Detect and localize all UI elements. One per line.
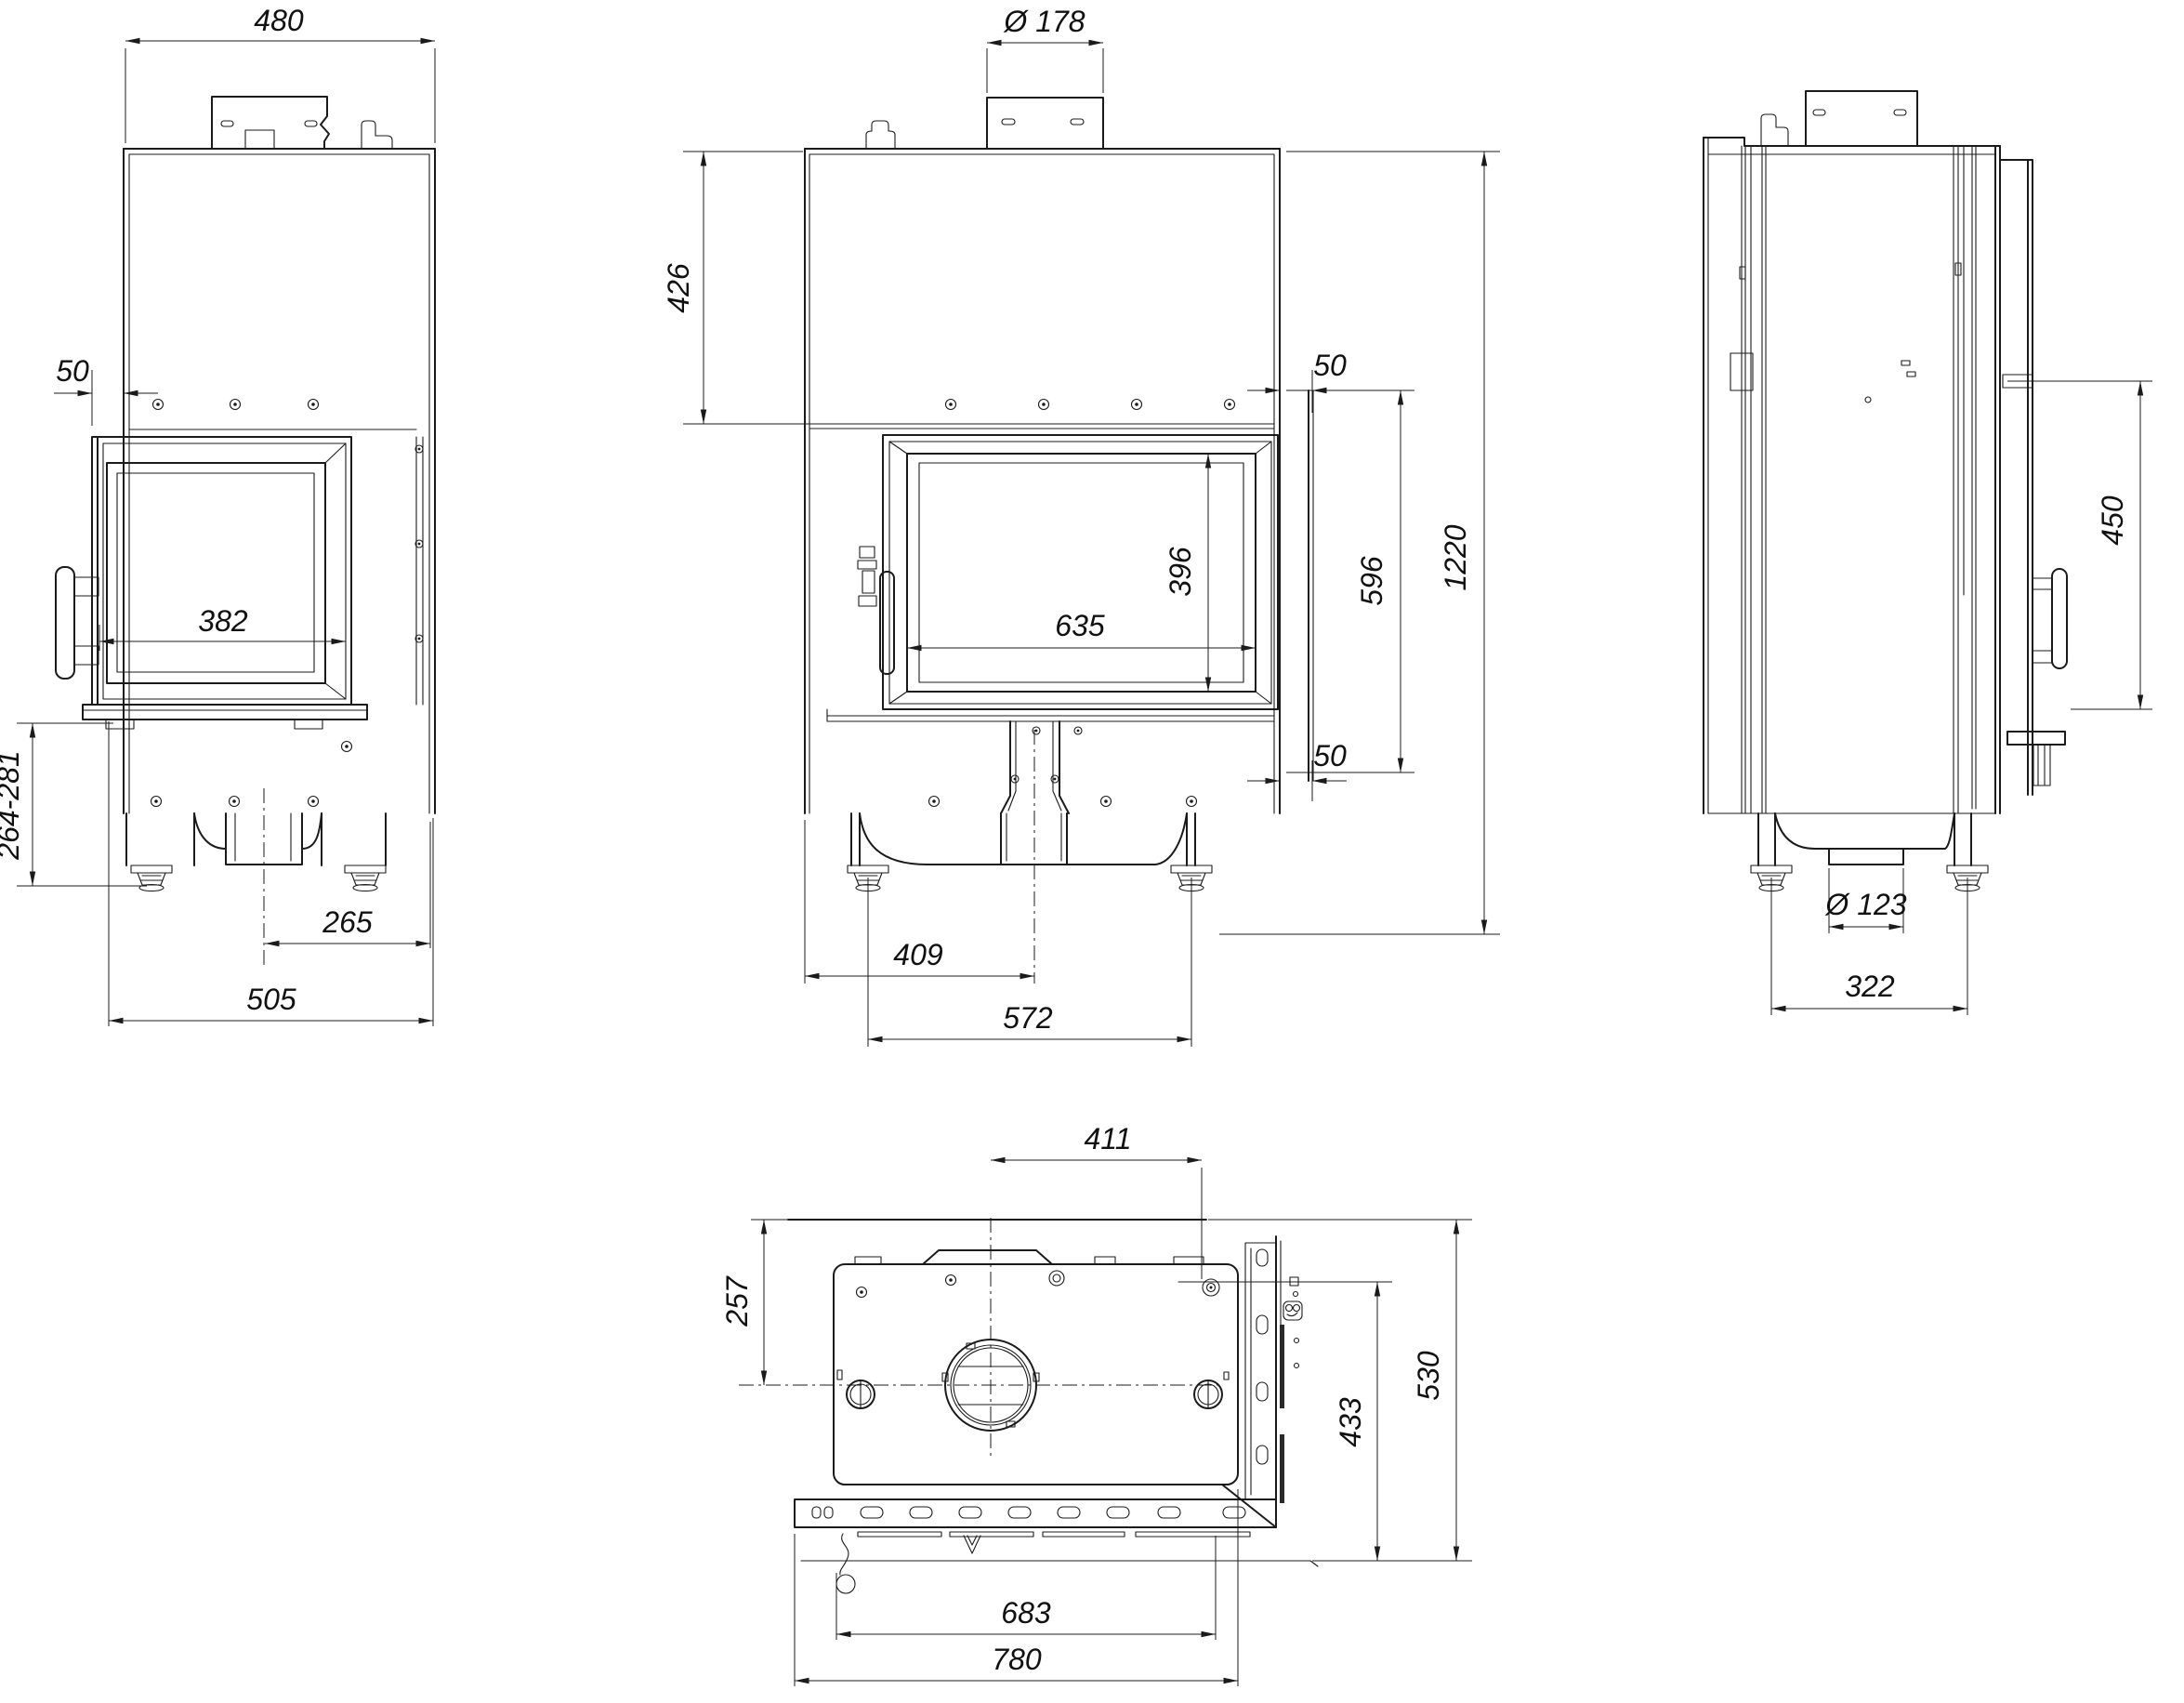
dim-50-top: 50 <box>1247 349 1347 413</box>
cold-handle-tool[interactable] <box>836 1534 855 1593</box>
dim-409: 409 <box>805 820 1034 984</box>
latch <box>964 1536 980 1553</box>
flue-collar <box>987 98 1103 149</box>
flue-collar <box>1806 91 1917 146</box>
dim-label: 411 <box>1084 1122 1131 1155</box>
side-door-edge <box>2000 160 2065 795</box>
side-glass-door <box>83 437 423 729</box>
dim-257: 257 <box>720 1220 788 1385</box>
dim-396: 396 <box>1164 454 1208 692</box>
dim-411: 411 <box>991 1122 1202 1279</box>
dim-382: 382 <box>99 604 346 651</box>
dim-label: 780 <box>992 1643 1042 1676</box>
dim-label: 572 <box>1003 1001 1053 1035</box>
dim-label: Ø 123 <box>1824 888 1906 921</box>
dim-label: 596 <box>1355 556 1388 606</box>
dim-label: 257 <box>720 1275 754 1327</box>
dim-683: 683 <box>836 1536 1216 1640</box>
dim-265: 265 <box>265 822 430 948</box>
adjustable-foot[interactable] <box>131 865 172 891</box>
technical-drawing-sheet: 480 50 382 264-281 265 505 <box>0 0 2184 1703</box>
hinge-clip-icon <box>1283 1301 1302 1320</box>
air-control-knob <box>362 121 392 149</box>
dim-label: 426 <box>662 263 695 313</box>
screw-large <box>1049 1271 1064 1286</box>
dim-label: 50 <box>56 354 89 388</box>
dim-label: 396 <box>1164 547 1197 597</box>
dim-label: Ø 178 <box>1003 5 1085 38</box>
view-top: 411 257 433 530 683 780 <box>720 1122 1472 1686</box>
view-side-b: 450 Ø 123 322 <box>1704 91 2152 1015</box>
dim-50-offset: 50 <box>54 354 158 426</box>
dim-label: 265 <box>322 905 373 939</box>
dim-50-bottom: 50 <box>1247 739 1347 801</box>
dim-450: 450 <box>2007 381 2152 709</box>
dim-label: 1220 <box>1439 524 1472 590</box>
dim-label: 50 <box>1313 739 1347 772</box>
dim-label: 409 <box>893 938 943 971</box>
adjustable-foot[interactable] <box>345 865 386 891</box>
dim-505: 505 <box>109 721 433 1026</box>
fireplace-insert-drawing: 480 50 382 264-281 265 505 <box>0 0 2184 1703</box>
dim-flue-123: Ø 123 <box>1824 868 1906 933</box>
air-control-knob <box>1761 114 1788 146</box>
dim-label: 683 <box>1001 1596 1051 1630</box>
dim-label: 530 <box>1412 1351 1445 1401</box>
dim-label: 433 <box>1334 1397 1367 1447</box>
dim-label: 322 <box>1845 970 1895 1003</box>
dim-426: 426 <box>662 152 811 424</box>
dim-480: 480 <box>125 4 435 143</box>
dim-label: 635 <box>1055 609 1105 642</box>
view-front: Ø 178 426 50 596 1220 50 <box>662 5 1500 1047</box>
view-side-a: 480 50 382 264-281 265 505 <box>0 4 435 1026</box>
dim-label: 450 <box>2096 495 2129 546</box>
door-handle[interactable] <box>2033 569 2067 668</box>
dim-label: 480 <box>254 4 304 37</box>
dim-label: 264-281 <box>0 750 25 860</box>
dim-530: 530 <box>1208 1220 1472 1561</box>
door-latch[interactable] <box>858 547 894 674</box>
dim-1220: 1220 <box>1219 152 1500 934</box>
dim-596: 596 <box>1286 390 1414 772</box>
dim-635: 635 <box>907 609 1256 648</box>
dim-label: 382 <box>198 604 248 638</box>
dim-flue-178: Ø 178 <box>987 5 1103 93</box>
dim-label: 505 <box>246 983 296 1016</box>
front-glass-edge <box>801 1561 1318 1566</box>
front-glass-door <box>858 435 1278 709</box>
dim-label: 50 <box>1313 349 1347 382</box>
dim-780: 780 <box>795 1489 1238 1686</box>
air-control-knob <box>866 121 895 149</box>
dim-433: 433 <box>1310 1282 1472 1561</box>
front-frame <box>795 1485 1276 1537</box>
dim-264-281: 264-281 <box>0 723 147 886</box>
